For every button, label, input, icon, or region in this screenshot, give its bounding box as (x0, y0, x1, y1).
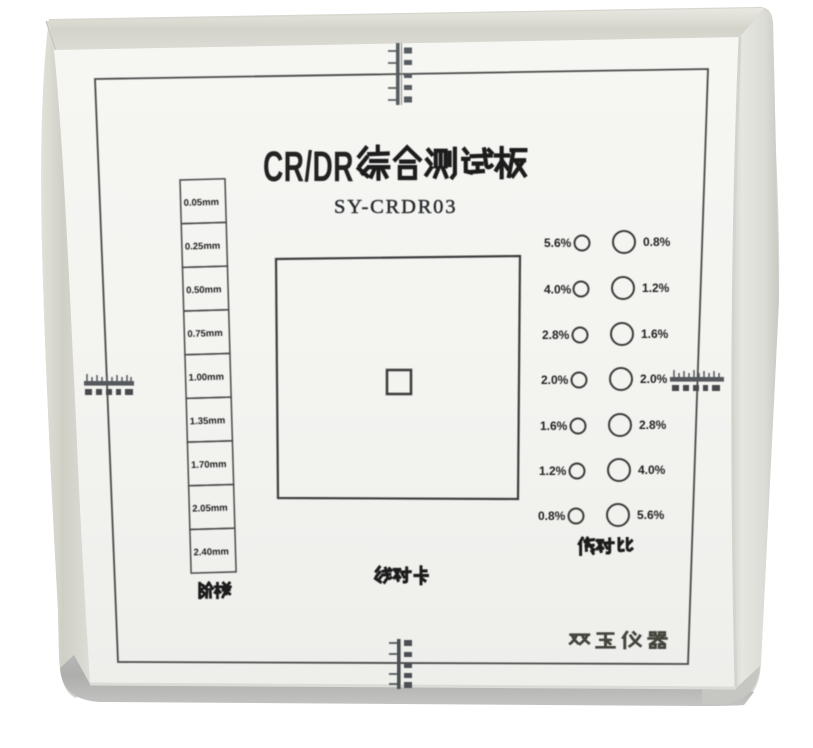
svg-text:2.8%: 2.8% (639, 418, 667, 432)
svg-text:0.75mm: 0.75mm (187, 328, 223, 340)
svg-text:2.8%: 2.8% (542, 328, 570, 342)
svg-text:0.50mm: 0.50mm (186, 284, 222, 296)
svg-text:2.0%: 2.0% (640, 372, 668, 386)
svg-text:1.2%: 1.2% (642, 281, 670, 295)
svg-text:4.0%: 4.0% (544, 282, 572, 296)
svg-text:0.8%: 0.8% (538, 509, 566, 523)
svg-text:0.8%: 0.8% (643, 235, 671, 249)
svg-text:1.70mm: 1.70mm (191, 459, 227, 471)
svg-text:2.40mm: 2.40mm (193, 546, 229, 558)
svg-text:0.05mm: 0.05mm (184, 197, 220, 209)
svg-text:CR/DR: CR/DR (263, 142, 354, 191)
svg-text:1.35mm: 1.35mm (190, 415, 226, 427)
svg-text:1.6%: 1.6% (641, 327, 669, 341)
svg-text:1.2%: 1.2% (539, 464, 567, 478)
svg-text:2.05mm: 2.05mm (192, 503, 228, 515)
svg-text:4.0%: 4.0% (638, 463, 666, 477)
svg-text:0.25mm: 0.25mm (185, 241, 221, 253)
svg-text:SY-CRDR03: SY-CRDR03 (334, 196, 457, 218)
svg-text:1.6%: 1.6% (540, 419, 568, 433)
svg-text:2.0%: 2.0% (541, 373, 569, 387)
svg-text:1.00mm: 1.00mm (188, 372, 224, 384)
svg-text:5.6%: 5.6% (544, 236, 572, 250)
svg-text:5.6%: 5.6% (637, 508, 665, 522)
